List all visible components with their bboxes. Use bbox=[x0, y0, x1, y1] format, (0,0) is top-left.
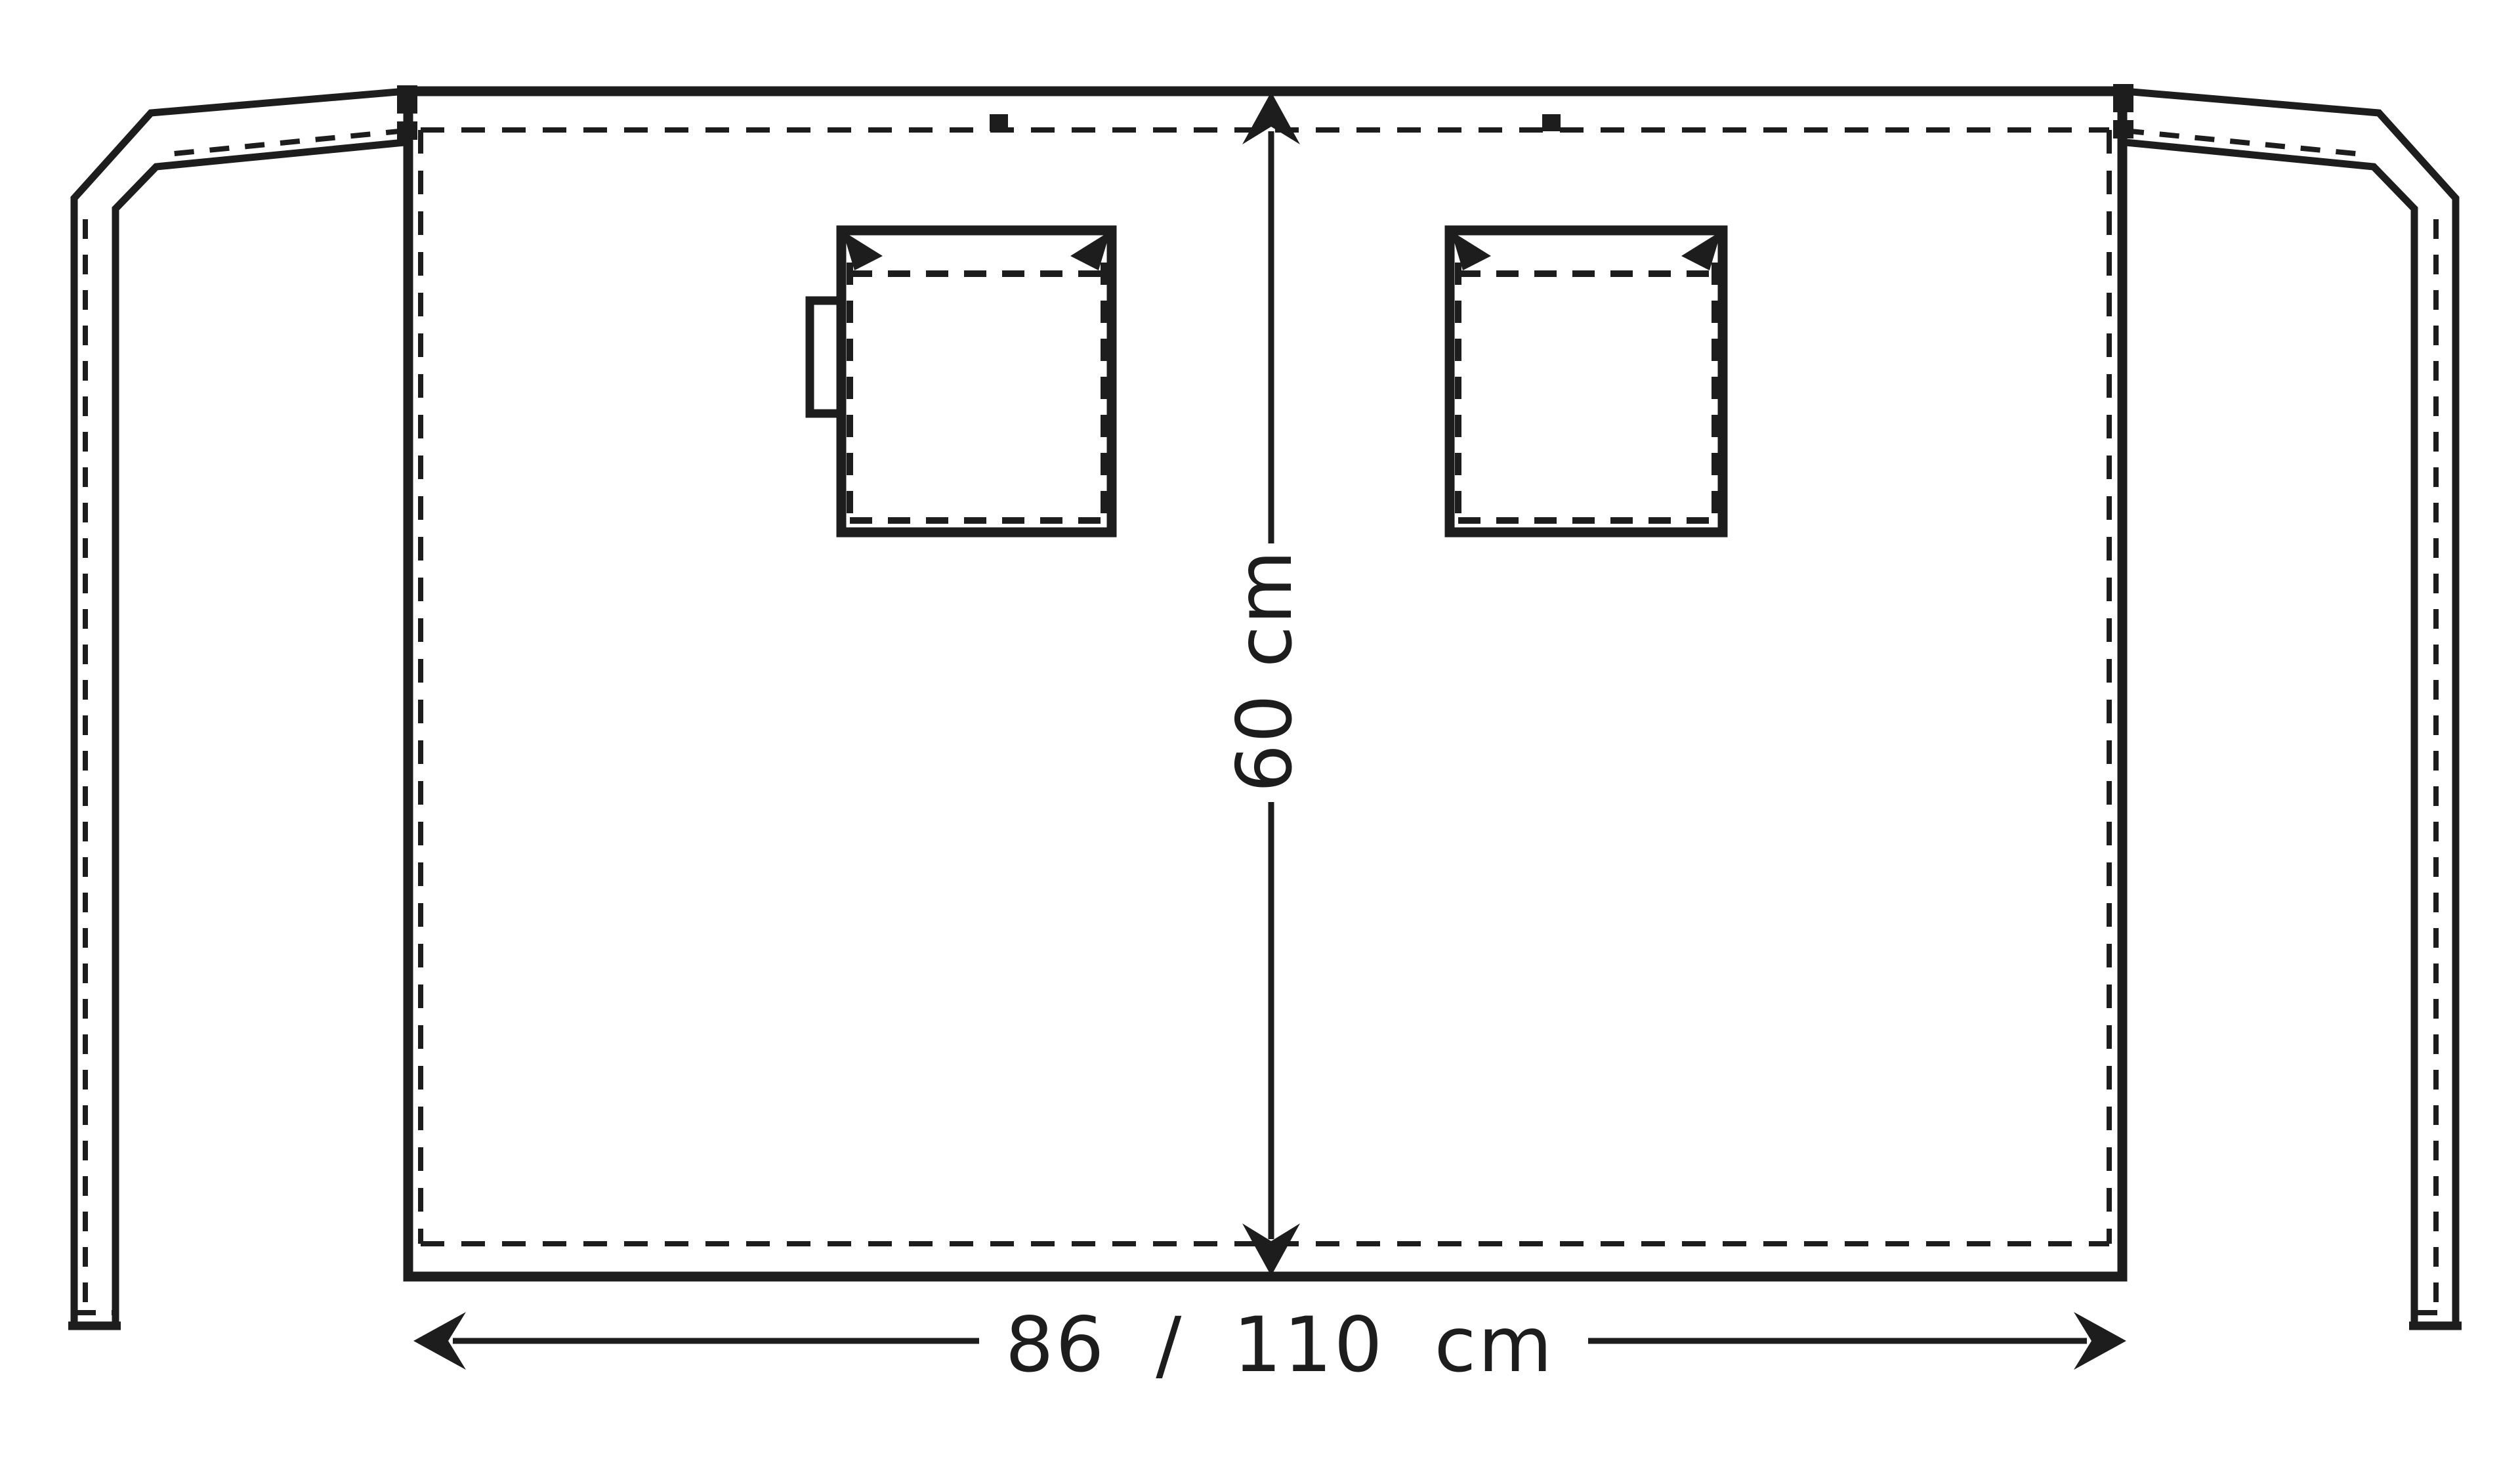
waist-tie-left bbox=[68, 91, 406, 1326]
tie-stitch-block bbox=[397, 85, 417, 114]
waistband-bartack-right bbox=[1542, 114, 1561, 131]
tie-left-inner-edge bbox=[115, 142, 404, 1323]
waist-tie-right bbox=[2124, 91, 2462, 1326]
pocket-left bbox=[841, 230, 1112, 532]
tie-stitch-block bbox=[2113, 120, 2133, 138]
pocket-right bbox=[1450, 230, 1723, 532]
tie-left-outer-edge bbox=[74, 91, 406, 1323]
tie-stitch-block bbox=[2113, 84, 2133, 112]
tie-attachment-left bbox=[397, 85, 417, 140]
width-dimension-label: 86 / 110 cm bbox=[1005, 1307, 1555, 1384]
height-dimension-label: 60 cm bbox=[1227, 549, 1303, 792]
tie-attachment-right bbox=[2113, 84, 2133, 138]
apron-dimension-diagram: 60 cm 86 / 110 cm bbox=[0, 0, 2520, 1482]
tie-right-inner-edge bbox=[2126, 142, 2414, 1323]
tie-stitch-block bbox=[397, 121, 417, 140]
tie-right-outer-edge bbox=[2124, 91, 2456, 1323]
waistband-bartack-left bbox=[990, 114, 1008, 131]
